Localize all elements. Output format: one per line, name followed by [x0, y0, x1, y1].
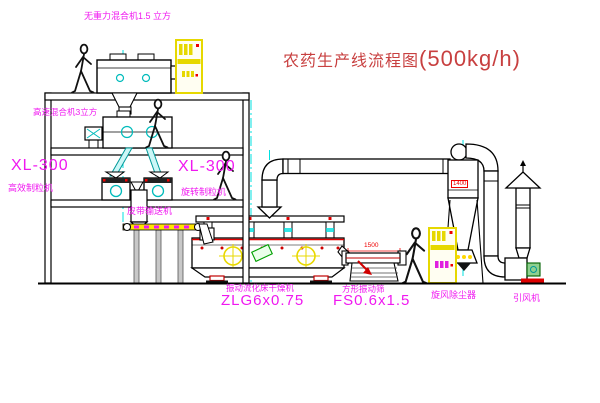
label-cyclone: 旋风除尘器	[431, 291, 476, 300]
label-high-speed-mixer: 高速混合机3立方	[33, 108, 97, 117]
high-speed-mixer	[85, 111, 172, 176]
drawing-title: 农药生产线流程图(500kg/h)	[283, 46, 521, 72]
cad-flow-diagram: 农药生产线流程图(500kg/h) 无重力混合机1.5 立方 高速混合机3立方 …	[0, 0, 600, 403]
rain-cap	[506, 172, 540, 188]
right-wall	[243, 93, 249, 283]
label-belt-conveyor: 皮带输送机	[127, 207, 172, 216]
fan-base	[521, 279, 544, 283]
title-capacity: (500kg/h)	[419, 46, 521, 71]
granulator-left-unit	[102, 172, 130, 200]
worker-figure	[72, 45, 94, 93]
label-granulator-left-name: 高效制粒机	[8, 184, 53, 193]
label-fan: 引风机	[513, 294, 540, 303]
induced-draft-fan	[505, 258, 544, 283]
fluid-bed-dryer	[192, 216, 354, 284]
control-cabinet-1	[176, 40, 202, 93]
label-granulator-mid-model: XL-300	[178, 159, 236, 175]
granulator-right-unit	[144, 172, 172, 200]
downcomer-pipe	[484, 171, 505, 277]
title-text: 农药生产线流程图	[283, 53, 419, 70]
dimension-cyclone-marker: 1400	[451, 180, 468, 188]
control-cabinet-2	[429, 228, 456, 283]
dimension-screen-length: 1500	[364, 243, 378, 250]
roof-slab	[45, 93, 249, 100]
exhaust-stack	[506, 160, 540, 258]
label-dryer-model: ZLG6x0.75	[221, 293, 304, 308]
fan-motor	[527, 263, 540, 276]
exhaust-duct	[258, 159, 450, 218]
label-screen-model: FS0.6x1.5	[333, 293, 410, 308]
vibrating-screen	[342, 248, 406, 281]
label-granulator-left-model: XL-300	[11, 158, 69, 174]
label-granulator-mid-name: 旋转制粒机	[181, 188, 226, 197]
label-gravity-free-mixer: 无重力混合机1.5 立方	[84, 12, 171, 21]
